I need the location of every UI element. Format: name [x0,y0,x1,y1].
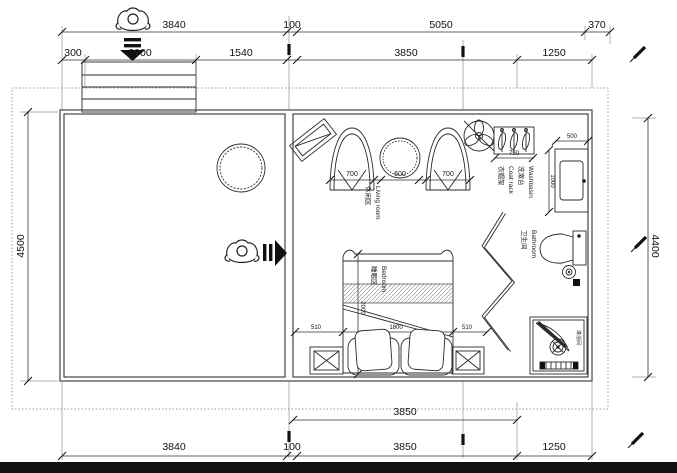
washbasin [555,149,588,212]
dim-nightstand-left-510: 510 [311,325,322,331]
dim-bottom2-3840: 3840 [162,441,186,453]
dim-basin-500: 500 [567,134,578,140]
shower-cabin [530,317,587,374]
dim-top-370: 370 [588,19,606,31]
floor-plan-sheet: 3840 100 5050 370 300 2000 1540 3850 125… [0,0,677,473]
zigzag-partition [482,212,515,352]
label-living-room-zh: 休闲区 [364,186,373,206]
ceiling-fan-icon [463,120,495,151]
dim-left-4500: 4500 [15,234,27,258]
label-bathroom-en: Bathroom [530,230,537,258]
dim-basin-1000: 1000 [549,174,555,188]
label-washbasin-en: Washbasin [527,166,534,198]
floor-plan-drawing: 3840 100 5050 370 300 2000 1540 3850 125… [0,0,677,473]
dimension-ticks [24,28,652,460]
round-table [217,144,265,192]
dim-bottom2-1250: 1250 [542,441,566,453]
label-washbasin-zh: 洗漱台 [517,166,526,186]
toilet [540,231,586,265]
dim-top2-300: 300 [64,47,82,59]
label-living-room-en: Living room [374,186,381,220]
dim-bottom-3850: 3850 [393,406,417,418]
sheet-bottom-bar [0,462,677,473]
dim-top2-1540: 1540 [229,47,253,59]
entry-arrow-right-icon [263,240,287,266]
pen-icon-middle-right [631,237,646,252]
toilet-paper-icon [563,266,581,287]
entrance-steps [82,62,196,112]
label-bathroom-zh: 卫生间 [520,230,529,250]
arch-chair-left [330,128,374,190]
arch-chair-right [426,128,470,190]
pen-icon-top-right [630,47,645,62]
dim-bed-1800: 1800 [389,325,403,331]
leaning-mirror [290,119,337,162]
label-bedroom-en: Bedroom [380,266,387,292]
dim-top2-1250: 1250 [542,47,566,59]
label-bedroom-zh: 睡眠区 [370,266,378,286]
dim-bottom2-100: 100 [283,441,301,453]
dim-bottom2-3850: 3850 [393,441,417,453]
dim-top-5050: 5050 [429,19,453,31]
dim-seat-left-700: 700 [346,171,358,178]
nightstand-right [452,347,484,374]
dim-top-100: 100 [283,19,301,31]
coat-rack [494,127,534,154]
floor-drain-icon [547,336,570,359]
dim-right-4400: 4400 [649,234,661,258]
label-coat-rack-en: Coat rack [507,166,514,195]
person-icon-entrance [116,8,150,31]
grid-lines [20,16,656,460]
label-shower-zh: 淋浴间 [575,330,582,345]
dim-top2-3850: 3850 [394,47,418,59]
dim-nightstand-right-510: 510 [462,325,473,331]
dim-seat-right-700: 700 [442,171,454,178]
label-coat-rack-zh: 衣帽架 [497,166,506,186]
person-icon-interior [225,240,259,263]
grid-pen-markers [287,44,464,445]
pen-icon-bottom-right [628,433,643,448]
dim-top-3840: 3840 [162,19,186,31]
nightstand-left [310,347,343,374]
dimension-lines [28,32,648,456]
